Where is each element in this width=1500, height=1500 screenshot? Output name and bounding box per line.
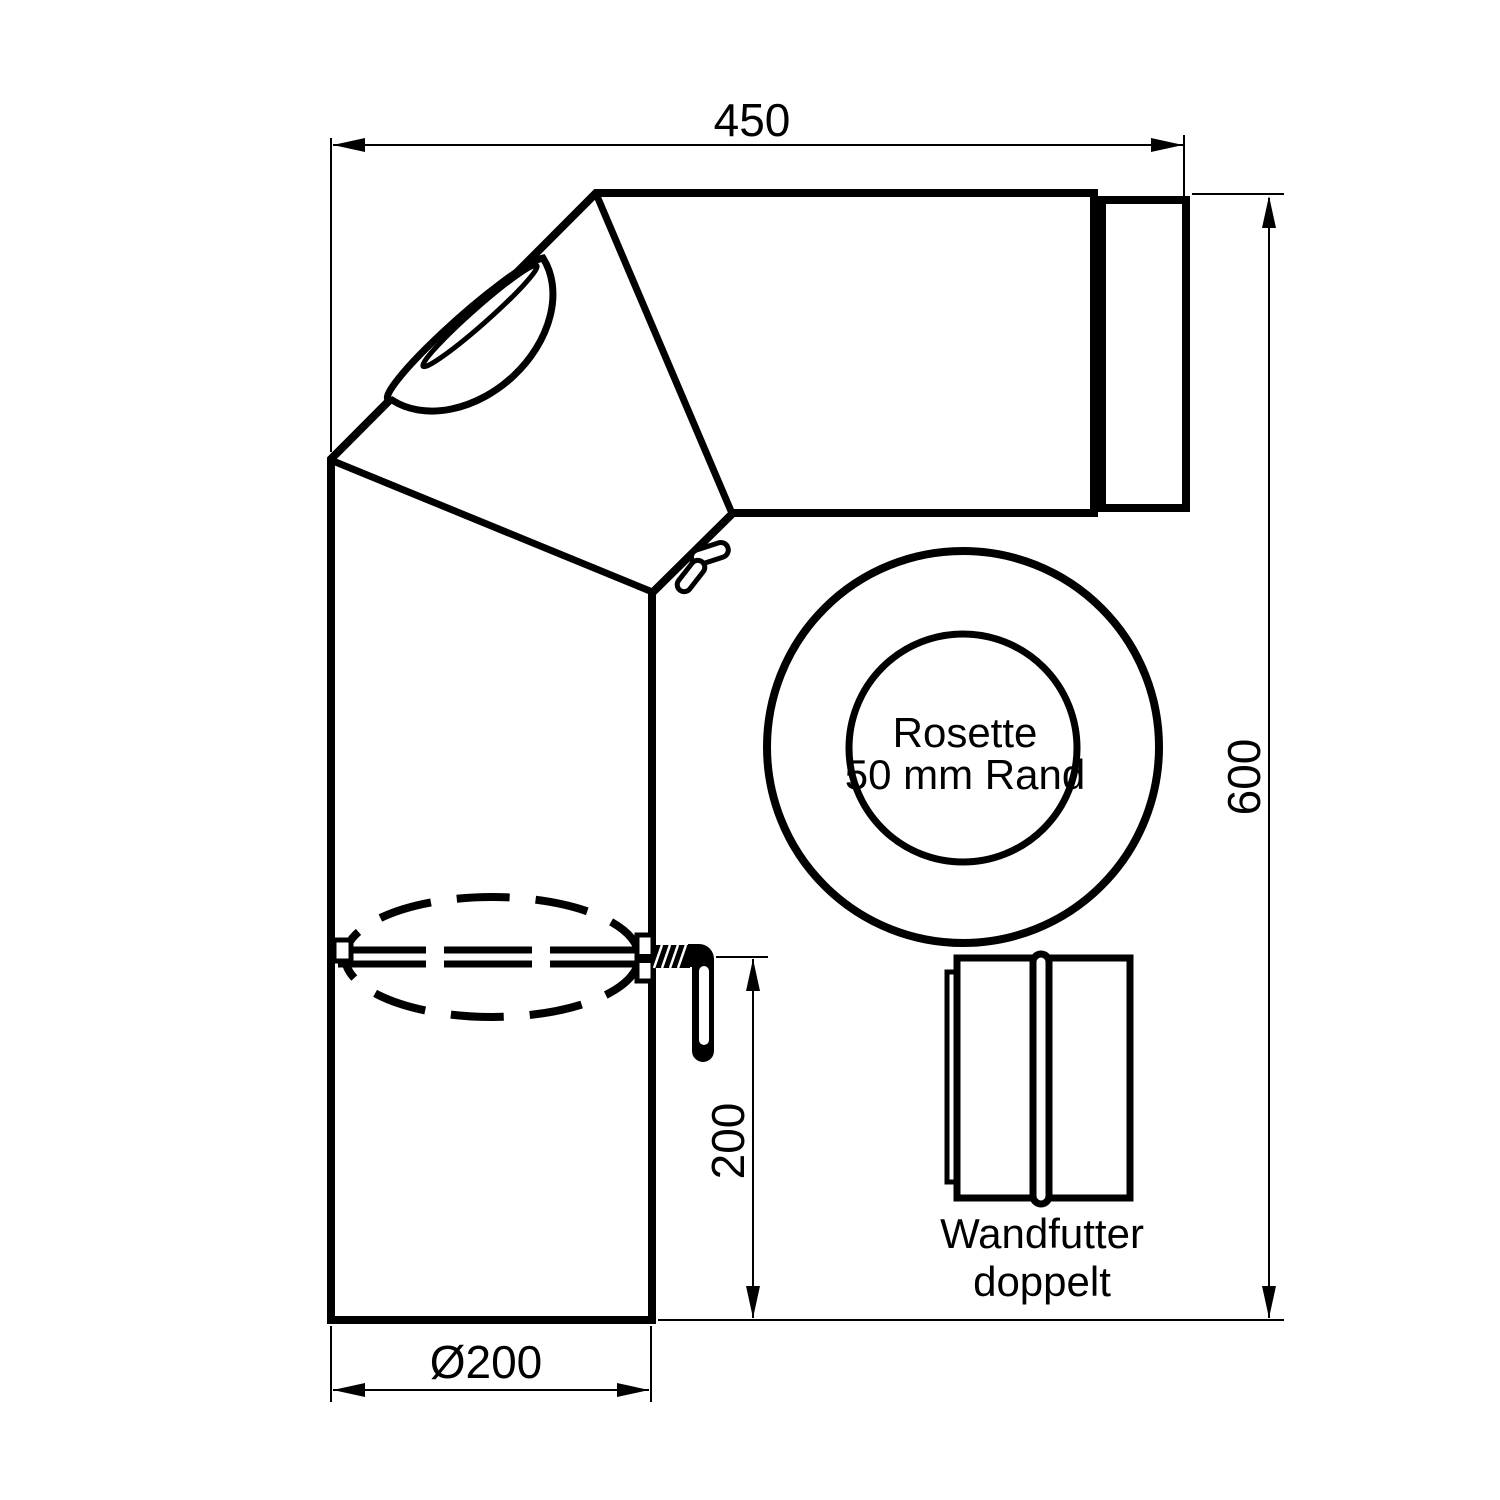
damper-bracket-bar bbox=[637, 954, 653, 963]
wall-sleeve-label-line1: Wandfutter bbox=[940, 1210, 1144, 1257]
pipe-spigot bbox=[1102, 200, 1186, 508]
arrowhead-450-left bbox=[333, 138, 365, 152]
wall-sleeve-collar bbox=[1033, 954, 1049, 1204]
arrowhead-600-bottom bbox=[1262, 1286, 1276, 1318]
damper-handle-slot bbox=[699, 966, 709, 1045]
rosette-label-line2: 50 mm Rand bbox=[845, 751, 1085, 798]
rosette: Rosette 50 mm Rand bbox=[767, 551, 1159, 943]
wall-sleeve: Wandfutter doppelt bbox=[940, 954, 1144, 1305]
stove-pipe-elbow-diagram: Rosette 50 mm Rand Wandfutter doppelt 45… bbox=[0, 0, 1500, 1500]
dim-text-600: 600 bbox=[1218, 739, 1270, 816]
arrowhead-d200-right bbox=[617, 1383, 649, 1397]
dim-text-d200: Ø200 bbox=[430, 1336, 543, 1388]
dim-text-450: 450 bbox=[714, 94, 791, 146]
dim-text-200: 200 bbox=[702, 1103, 754, 1180]
wall-sleeve-label-line2: doppelt bbox=[973, 1258, 1111, 1305]
arrowhead-600-top bbox=[1262, 196, 1276, 228]
rosette-label-line1: Rosette bbox=[893, 709, 1038, 756]
arrowhead-d200-left bbox=[333, 1383, 365, 1397]
arrowhead-450-right bbox=[1151, 138, 1183, 152]
technical-drawing-canvas: Rosette 50 mm Rand Wandfutter doppelt 45… bbox=[0, 0, 1500, 1500]
arrowhead-200-bottom bbox=[746, 1286, 760, 1318]
arrowhead-200-top bbox=[746, 959, 760, 991]
damper-axle-end-cap bbox=[334, 940, 351, 961]
